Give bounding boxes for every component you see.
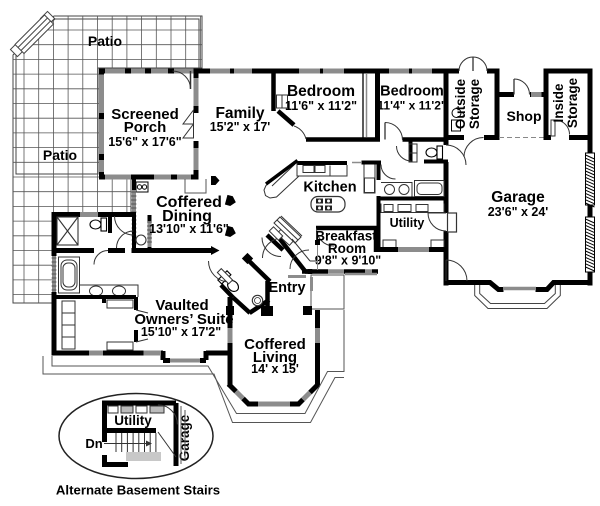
svg-text:Shop: Shop <box>507 108 542 124</box>
svg-text:Storage: Storage <box>467 78 482 129</box>
svg-text:Garage: Garage <box>491 189 545 206</box>
svg-text:15'2" x 17': 15'2" x 17' <box>210 120 271 134</box>
svg-text:Bedroom: Bedroom <box>380 84 444 100</box>
svg-text:9'8" x 9'10": 9'8" x 9'10" <box>315 254 382 268</box>
svg-text:Alternate Basement Stairs: Alternate Basement Stairs <box>56 483 220 498</box>
svg-text:Porch: Porch <box>124 119 167 136</box>
svg-text:13'10" x 11'6": 13'10" x 11'6" <box>149 222 229 236</box>
svg-text:Utility: Utility <box>390 216 425 230</box>
svg-text:23'6" x 24': 23'6" x 24' <box>488 205 549 219</box>
svg-text:14' x 15': 14' x 15' <box>251 362 299 376</box>
svg-text:Outside: Outside <box>453 78 468 129</box>
svg-text:Bedroom: Bedroom <box>287 83 355 100</box>
svg-text:11'6" x 11'2": 11'6" x 11'2" <box>285 99 357 113</box>
svg-text:15'6" x 17'6": 15'6" x 17'6" <box>108 135 181 149</box>
svg-text:Patio: Patio <box>43 147 77 163</box>
svg-text:Utility: Utility <box>114 413 152 428</box>
svg-text:Storage: Storage <box>565 77 580 128</box>
svg-text:11'4" x 11'2": 11'4" x 11'2" <box>377 99 446 113</box>
svg-text:Patio: Patio <box>88 33 122 49</box>
svg-text:15'10" x 17'2": 15'10" x 17'2" <box>141 325 221 339</box>
svg-text:Dn: Dn <box>85 436 102 451</box>
svg-text:Entry: Entry <box>268 280 305 296</box>
svg-text:Kitchen: Kitchen <box>303 180 356 196</box>
svg-text:Inside: Inside <box>551 83 566 123</box>
